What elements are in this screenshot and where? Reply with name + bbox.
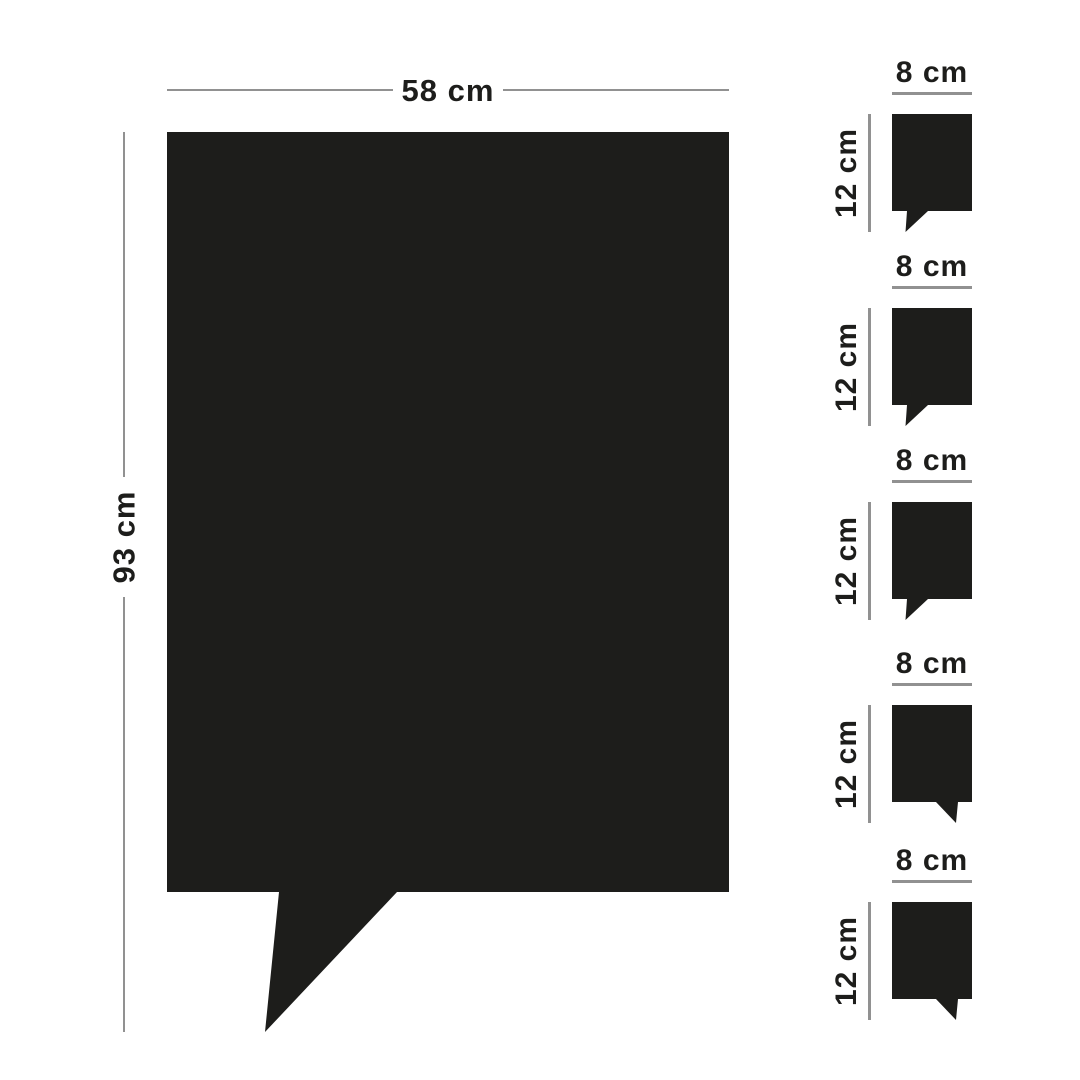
small-height-label: 12 cm xyxy=(832,916,862,1006)
small-width-label: 8 cm xyxy=(892,252,972,282)
small-speech-bubble-shape-mirrored xyxy=(892,705,972,823)
dimension-line xyxy=(868,902,871,1020)
small-height-label: 12 cm xyxy=(832,128,862,218)
dimension-line xyxy=(892,683,972,686)
dimension-line xyxy=(868,705,871,823)
small-width-label: 8 cm xyxy=(892,649,972,679)
dimension-line-right xyxy=(503,89,729,92)
small-width-label: 8 cm xyxy=(892,446,972,476)
small-height-label-box: 12 cm xyxy=(828,308,865,426)
dimension-diagram: 58 cm 93 cm 8 cm 12 cm 8 cm 12 cm xyxy=(0,0,1080,1080)
dimension-line xyxy=(892,480,972,483)
small-bubble-unit-4: 8 cm 12 cm xyxy=(828,649,978,829)
main-height-dimension: 93 cm xyxy=(104,132,144,1032)
small-height-label: 12 cm xyxy=(832,516,862,606)
small-width-label: 8 cm xyxy=(892,58,972,88)
small-speech-bubble-shape xyxy=(892,502,972,620)
small-width-label: 8 cm xyxy=(892,846,972,876)
main-height-label-box: 93 cm xyxy=(104,477,144,597)
dimension-line xyxy=(892,286,972,289)
dimension-line xyxy=(892,880,972,883)
main-height-label: 93 cm xyxy=(109,491,140,584)
large-speech-bubble-shape xyxy=(167,132,729,1032)
small-height-label: 12 cm xyxy=(832,719,862,809)
dimension-line xyxy=(892,92,972,95)
small-speech-bubble-shape xyxy=(892,308,972,426)
small-bubble-unit-3: 8 cm 12 cm xyxy=(828,446,978,626)
small-bubble-unit-1: 8 cm 12 cm xyxy=(828,58,978,238)
small-bubble-unit-5: 8 cm 12 cm xyxy=(828,846,978,1026)
small-height-label: 12 cm xyxy=(832,322,862,412)
dimension-line-bottom xyxy=(123,597,126,1032)
small-height-label-box: 12 cm xyxy=(828,705,865,823)
dimension-line xyxy=(868,502,871,620)
dimension-line-top xyxy=(123,132,126,477)
main-width-dimension: 58 cm xyxy=(167,74,729,106)
small-height-label-box: 12 cm xyxy=(828,114,865,232)
small-bubble-unit-2: 8 cm 12 cm xyxy=(828,252,978,432)
main-width-label: 58 cm xyxy=(402,75,495,106)
small-height-label-box: 12 cm xyxy=(828,902,865,1020)
small-speech-bubble-shape-mirrored xyxy=(892,902,972,1020)
dimension-line-left xyxy=(167,89,393,92)
small-height-label-box: 12 cm xyxy=(828,502,865,620)
dimension-line xyxy=(868,114,871,232)
small-speech-bubble-shape xyxy=(892,114,972,232)
dimension-line xyxy=(868,308,871,426)
